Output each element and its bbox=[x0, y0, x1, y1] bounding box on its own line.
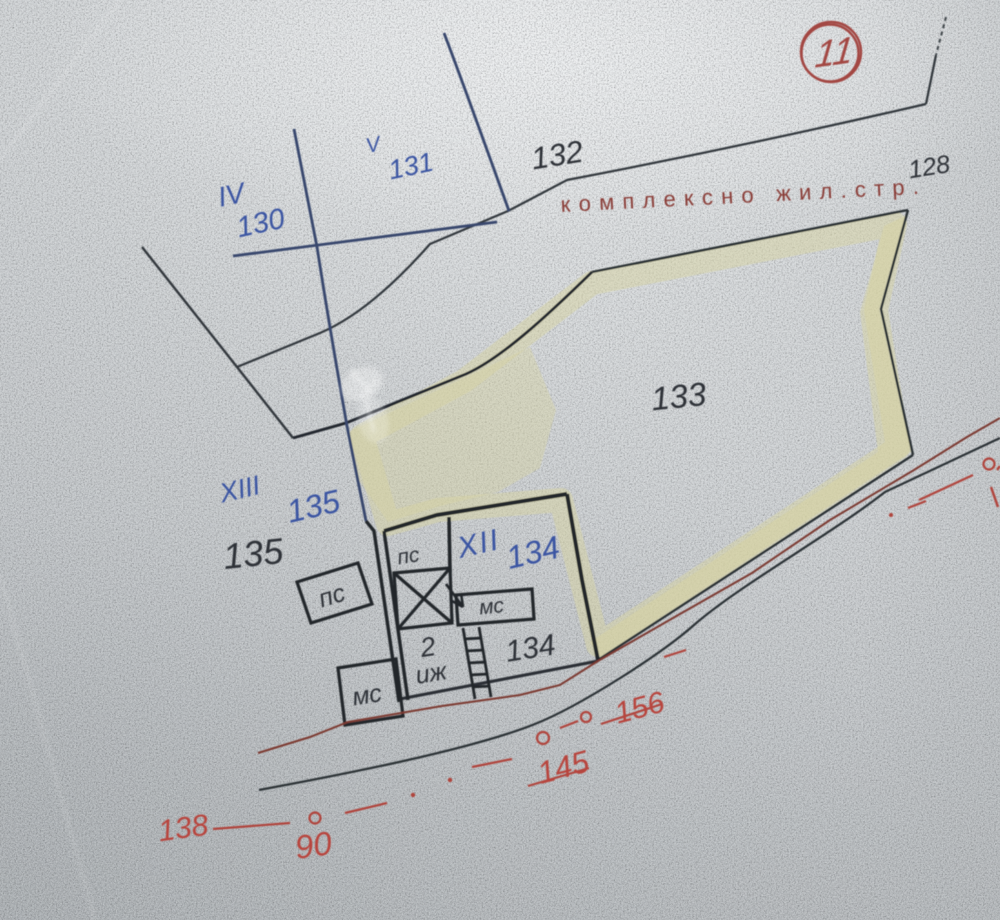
svg-text:пс: пс bbox=[396, 543, 422, 569]
svg-text:138: 138 bbox=[156, 809, 210, 849]
svg-text:мс: мс bbox=[478, 594, 505, 620]
svg-text:90: 90 bbox=[293, 824, 335, 866]
svg-text:мс: мс bbox=[350, 679, 384, 711]
svg-text:133: 133 bbox=[649, 375, 708, 418]
svg-text:135: 135 bbox=[221, 530, 286, 577]
svg-text:11: 11 bbox=[813, 28, 855, 76]
svg-text:иж: иж bbox=[414, 657, 451, 690]
